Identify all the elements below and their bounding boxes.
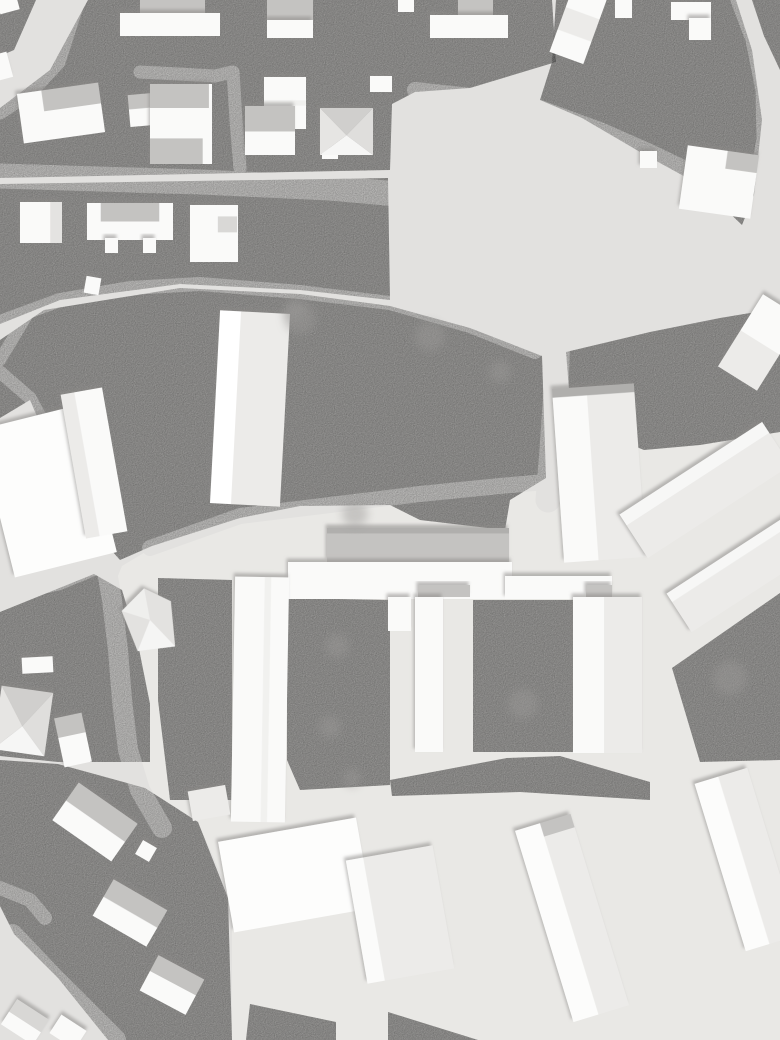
building — [430, 15, 508, 38]
building-footprint — [105, 238, 118, 253]
roof-part — [604, 597, 642, 753]
building — [320, 108, 373, 155]
building — [20, 202, 62, 243]
tree — [508, 689, 538, 719]
tree — [713, 661, 747, 695]
building — [398, 0, 414, 12]
building — [573, 597, 642, 753]
building — [0, 686, 53, 757]
building-footprint — [388, 597, 411, 631]
roof-part — [128, 93, 154, 110]
building — [150, 84, 212, 164]
site-plan-canvas — [0, 0, 780, 1040]
building-footprint — [231, 577, 289, 823]
building — [689, 18, 711, 40]
tree — [343, 769, 361, 787]
building — [22, 656, 54, 674]
building — [105, 238, 118, 253]
building-footprint — [267, 0, 313, 20]
building — [458, 0, 493, 16]
building-footprint — [689, 18, 711, 40]
building — [288, 562, 512, 599]
building-footprint — [288, 562, 512, 599]
building-footprint — [190, 205, 238, 262]
building-footprint — [640, 151, 657, 168]
building — [671, 2, 711, 20]
block-texture — [473, 600, 573, 752]
tree — [489, 361, 511, 383]
building — [231, 577, 289, 823]
roof-part — [50, 202, 62, 243]
building-footprint — [671, 2, 711, 20]
tree — [319, 716, 341, 738]
roof-part — [327, 528, 509, 533]
roof-part — [218, 216, 237, 232]
building — [245, 106, 295, 155]
building — [586, 585, 612, 597]
roof-part — [150, 84, 209, 108]
building-footprint — [418, 585, 470, 597]
building — [388, 597, 411, 631]
building — [418, 585, 470, 597]
tree — [284, 300, 304, 320]
building — [327, 528, 509, 562]
roof-part — [101, 203, 159, 222]
building-footprint — [84, 276, 102, 295]
building — [87, 203, 173, 240]
building — [84, 276, 102, 295]
building — [640, 151, 657, 168]
building — [552, 383, 646, 562]
building — [210, 310, 290, 506]
building — [370, 76, 392, 92]
building-footprint — [267, 20, 313, 38]
building-footprint — [415, 597, 443, 752]
building-footprint — [22, 656, 54, 674]
roof-part — [264, 100, 306, 105]
building — [615, 0, 632, 18]
building — [120, 13, 220, 36]
building-footprint — [143, 238, 156, 253]
building-footprint — [615, 0, 632, 18]
building-footprint — [398, 0, 414, 12]
roof-part — [245, 106, 295, 131]
site-plan-map — [0, 0, 780, 1040]
tree — [325, 634, 349, 658]
block-texture — [287, 598, 390, 790]
building-footprint — [370, 76, 392, 92]
tree — [415, 321, 445, 351]
building — [267, 0, 313, 20]
building — [143, 238, 156, 253]
building — [415, 597, 443, 752]
building — [190, 205, 238, 262]
tree — [342, 501, 368, 527]
building — [679, 145, 759, 218]
building-footprint — [586, 585, 612, 597]
building-footprint — [458, 0, 493, 16]
building — [267, 20, 313, 38]
roof-part — [150, 138, 203, 164]
building-footprint — [120, 13, 220, 36]
building-footprint — [430, 15, 508, 38]
